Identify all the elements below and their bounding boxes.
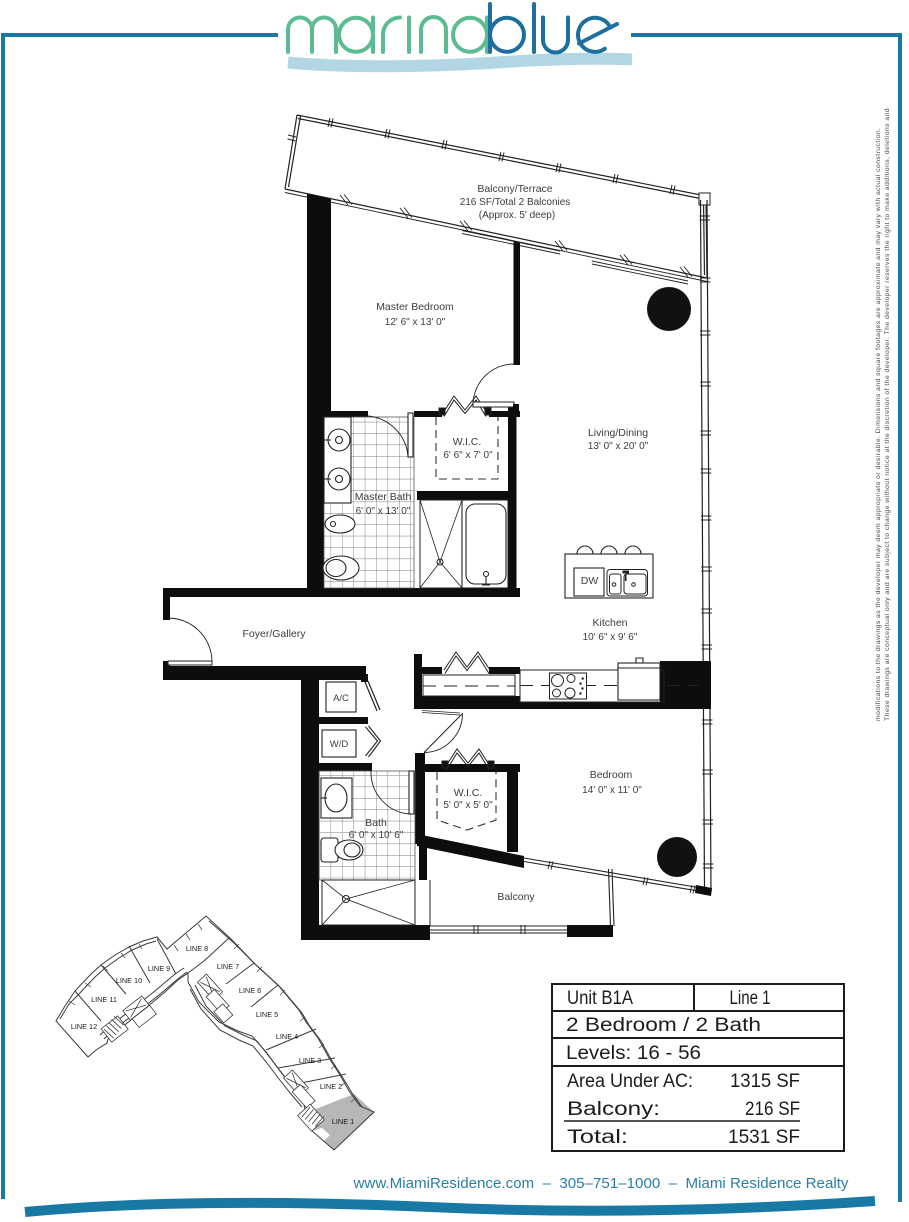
- svg-text:(Approx. 5' deep): (Approx. 5' deep): [479, 210, 555, 221]
- svg-text:W/D: W/D: [330, 739, 349, 750]
- svg-text:Balcony/Terrace: Balcony/Terrace: [477, 183, 552, 195]
- svg-text:A/C: A/C: [333, 693, 349, 704]
- svg-text:216 SF/Total 2 Balconies: 216 SF/Total 2 Balconies: [460, 197, 571, 208]
- svg-text:6' 6" x 7' 0": 6' 6" x 7' 0": [443, 450, 493, 461]
- svg-text:LINE 2: LINE 2: [320, 1082, 342, 1091]
- svg-text:LINE 5: LINE 5: [256, 1010, 278, 1019]
- svg-text:LINE 1: LINE 1: [332, 1117, 354, 1126]
- svg-text:12' 6" x 13' 0": 12' 6" x 13' 0": [385, 317, 446, 328]
- svg-text:LINE 8: LINE 8: [186, 944, 208, 953]
- svg-text:Unit B1A: Unit B1A: [567, 988, 633, 1009]
- svg-text:Levels: 16 - 56: Levels: 16 - 56: [566, 1043, 701, 1064]
- svg-text:W.I.C.: W.I.C.: [454, 787, 483, 799]
- svg-text:Line 1: Line 1: [730, 988, 771, 1009]
- svg-text:Kitchen: Kitchen: [592, 617, 627, 629]
- svg-text:Bedroom: Bedroom: [590, 769, 633, 781]
- svg-text:6' 0" x 10' 6": 6' 0" x 10' 6": [349, 830, 404, 841]
- svg-text:LINE 11: LINE 11: [91, 995, 117, 1004]
- svg-text:Total:: Total:: [567, 1127, 628, 1148]
- svg-text:6' 0" x 13' 0": 6' 0" x 13' 0": [356, 506, 411, 517]
- svg-text:Master Bath: Master Bath: [355, 491, 412, 503]
- svg-text:2 Bedroom / 2 Bath: 2 Bedroom / 2 Bath: [566, 1015, 761, 1036]
- svg-text:Living/Dining: Living/Dining: [588, 427, 648, 439]
- svg-text:LINE 12: LINE 12: [71, 1022, 97, 1031]
- svg-text:LINE 10: LINE 10: [116, 976, 142, 985]
- svg-text:Balcony:: Balcony:: [567, 1099, 660, 1120]
- svg-text:Balcony: Balcony: [497, 891, 535, 903]
- svg-text:LINE 3: LINE 3: [299, 1056, 321, 1065]
- svg-text:LINE 9: LINE 9: [148, 964, 170, 973]
- svg-text:LINE 7: LINE 7: [217, 962, 239, 971]
- svg-text:Bath: Bath: [365, 817, 387, 829]
- svg-text:14' 0" x 11' 0": 14' 0" x 11' 0": [582, 785, 642, 796]
- svg-text:DW: DW: [581, 575, 599, 587]
- svg-text:Area Under AC:: Area Under AC:: [567, 1071, 693, 1092]
- svg-text:1315 SF: 1315 SF: [730, 1071, 800, 1092]
- svg-text:10' 6" x 9' 6": 10' 6" x 9' 6": [583, 632, 638, 643]
- svg-text:LINE 6: LINE 6: [239, 986, 261, 995]
- svg-text:216 SF: 216 SF: [745, 1099, 800, 1120]
- svg-text:5' 0" x 5' 0": 5' 0" x 5' 0": [443, 800, 493, 811]
- svg-text:These drawings are conceptual: These drawings are conceptual only and a…: [884, 108, 891, 721]
- svg-text:www.MiamiResidence.com – 305: www.MiamiResidence.com – 305–751–1000 – …: [352, 1175, 849, 1192]
- svg-text:W.I.C.: W.I.C.: [453, 436, 482, 448]
- svg-text:1531 SF: 1531 SF: [728, 1127, 800, 1148]
- svg-text:13' 0" x 20' 0": 13' 0" x 20' 0": [588, 441, 649, 452]
- svg-text:Foyer/Gallery: Foyer/Gallery: [242, 628, 306, 640]
- svg-text:modifications to the drawings: modifications to the drawings as the dev…: [875, 127, 882, 721]
- svg-text:LINE 4: LINE 4: [276, 1032, 298, 1041]
- svg-text:Master Bedroom: Master Bedroom: [376, 301, 454, 313]
